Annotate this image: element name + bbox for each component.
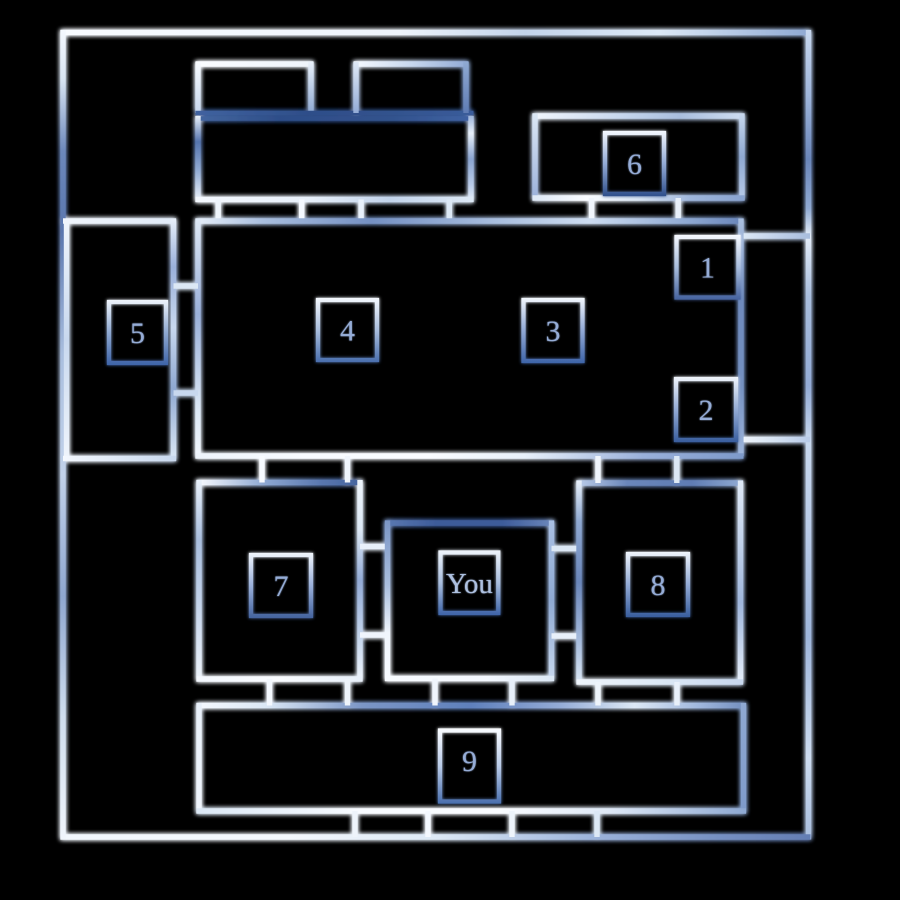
- svg-text:4: 4: [340, 314, 355, 347]
- svg-text:5: 5: [130, 317, 145, 350]
- svg-text:1: 1: [700, 252, 715, 285]
- svg-text:3: 3: [546, 315, 561, 348]
- svg-text:6: 6: [627, 148, 642, 181]
- svg-text:8: 8: [651, 569, 666, 602]
- svg-text:7: 7: [274, 570, 289, 603]
- svg-text:You: You: [446, 568, 493, 600]
- svg-text:2: 2: [699, 394, 714, 427]
- svg-text:9: 9: [462, 745, 477, 778]
